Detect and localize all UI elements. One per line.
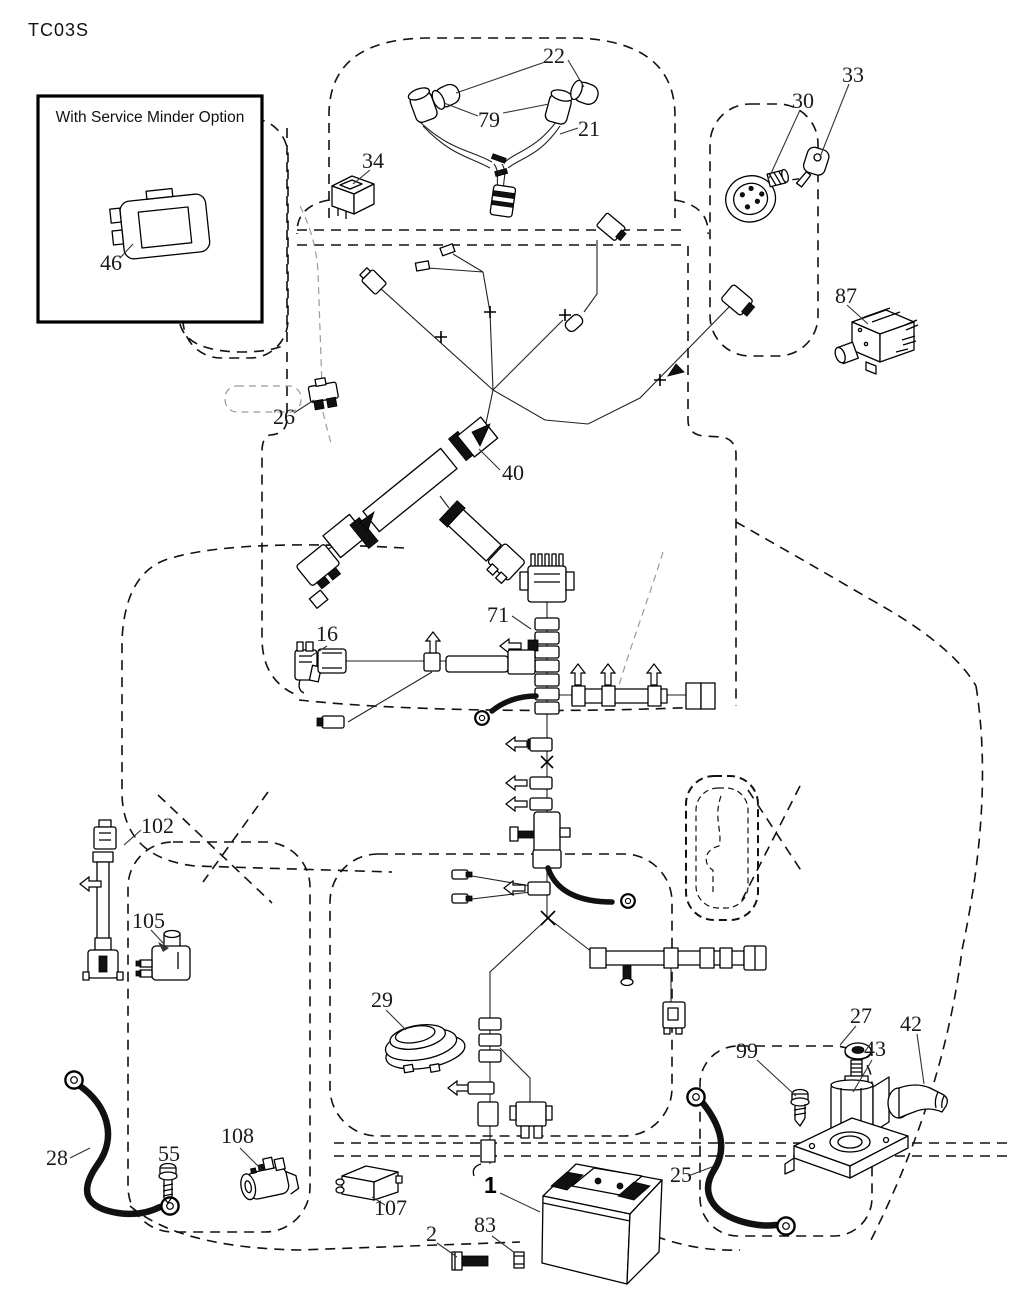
diagram-title: TC03S [28,20,89,40]
headlight-harness [407,79,601,218]
jumper-wire-102 [80,820,123,980]
part-label-105: 105 [132,908,165,933]
battery-1 [542,1164,662,1284]
part-label-46: 46 [100,250,122,275]
bolt-2 [452,1252,488,1270]
part-label-34: 34 [362,148,384,173]
screw-99 [791,1090,809,1127]
part-label-29: 29 [371,987,393,1012]
part-label-21: 21 [578,116,600,141]
spacer-83 [514,1252,524,1268]
part-label-55: 55 [158,1141,180,1166]
terminal-boot-42 [888,1085,947,1118]
headlight-plug [490,185,516,218]
main-harness-40 [288,213,757,609]
part-label-33: 33 [842,62,864,87]
ground-wire-mid [548,868,635,908]
gear-shift-gate-outline [686,776,758,920]
part-label-71: 71 [487,602,509,627]
part-label-40: 40 [502,460,524,485]
solenoid-cable-25 [687,1088,794,1234]
part-label-2: 2 [426,1221,437,1246]
inset-caption: With Service Minder Option [56,109,245,126]
light-switch-34 [332,176,374,219]
starter-solenoid-108 [236,1153,299,1204]
part-label-83: 83 [474,1212,496,1237]
parts-diagram-page: With Service Minder Option [0,0,1024,1299]
part-label-22: 22 [543,43,565,68]
part-label-43: 43 [864,1036,886,1061]
part-label-30: 30 [792,88,814,113]
plunger-switch-87 [833,308,918,374]
bulb-socket-79-right [544,88,574,126]
ignition-key-33 [791,144,831,193]
part-label-99: 99 [736,1038,758,1063]
part-label-1: 1 [484,1172,497,1198]
part-label-25: 25 [670,1162,692,1187]
ignition-switch-30 [721,166,797,227]
part-label-79: 79 [478,107,500,132]
part-label-28: 28 [46,1145,68,1170]
part-label-108: 108 [221,1123,254,1148]
part-label-102: 102 [141,813,174,838]
part-label-87: 87 [835,283,857,308]
part-label-16: 16 [316,621,338,646]
center-harness-71 [317,554,766,1176]
solenoid-43 [785,1060,908,1178]
service-minder-inset: With Service Minder Option [38,96,262,322]
sensor-105 [136,931,190,981]
wiring-diagram-canvas: With Service Minder Option [0,0,1024,1299]
part-label-27: 27 [850,1003,872,1028]
part-label-42: 42 [900,1011,922,1036]
part-label-107: 107 [374,1195,407,1220]
headlight-bulb-22-right [568,79,600,107]
fuse-26 [307,376,340,410]
part-label-26: 26 [273,404,295,429]
hourmeter-29 [381,1018,468,1080]
